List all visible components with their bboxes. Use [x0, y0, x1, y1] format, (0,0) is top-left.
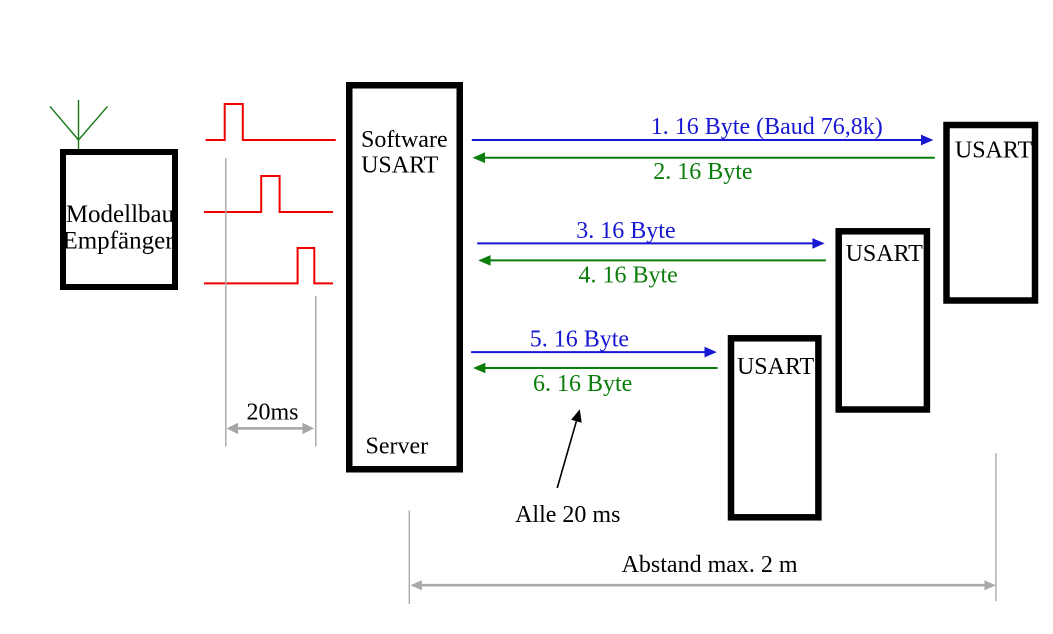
svg-text:Empfänger: Empfänger	[62, 228, 174, 255]
svg-text:3. 16 Byte: 3. 16 Byte	[576, 218, 675, 244]
svg-text:Abstand max. 2 m: Abstand max. 2 m	[622, 552, 798, 578]
svg-text:2. 16 Byte: 2. 16 Byte	[653, 159, 752, 185]
svg-text:4. 16 Byte: 4. 16 Byte	[579, 263, 678, 289]
svg-text:USART: USART	[955, 138, 1033, 164]
svg-text:Alle 20 ms: Alle 20 ms	[515, 502, 620, 528]
svg-text:USART: USART	[846, 241, 924, 267]
svg-text:USART: USART	[361, 152, 439, 178]
svg-text:Software: Software	[361, 127, 448, 153]
svg-text:USART: USART	[737, 354, 815, 380]
svg-text:6. 16 Byte: 6. 16 Byte	[533, 371, 632, 397]
svg-text:Server: Server	[365, 434, 428, 460]
svg-text:Modellbau: Modellbau	[66, 201, 175, 228]
svg-text:5. 16 Byte: 5. 16 Byte	[530, 326, 629, 352]
svg-text:20ms: 20ms	[246, 399, 298, 425]
svg-text:1. 16 Byte (Baud 76,8k): 1. 16 Byte (Baud 76,8k)	[651, 114, 883, 140]
